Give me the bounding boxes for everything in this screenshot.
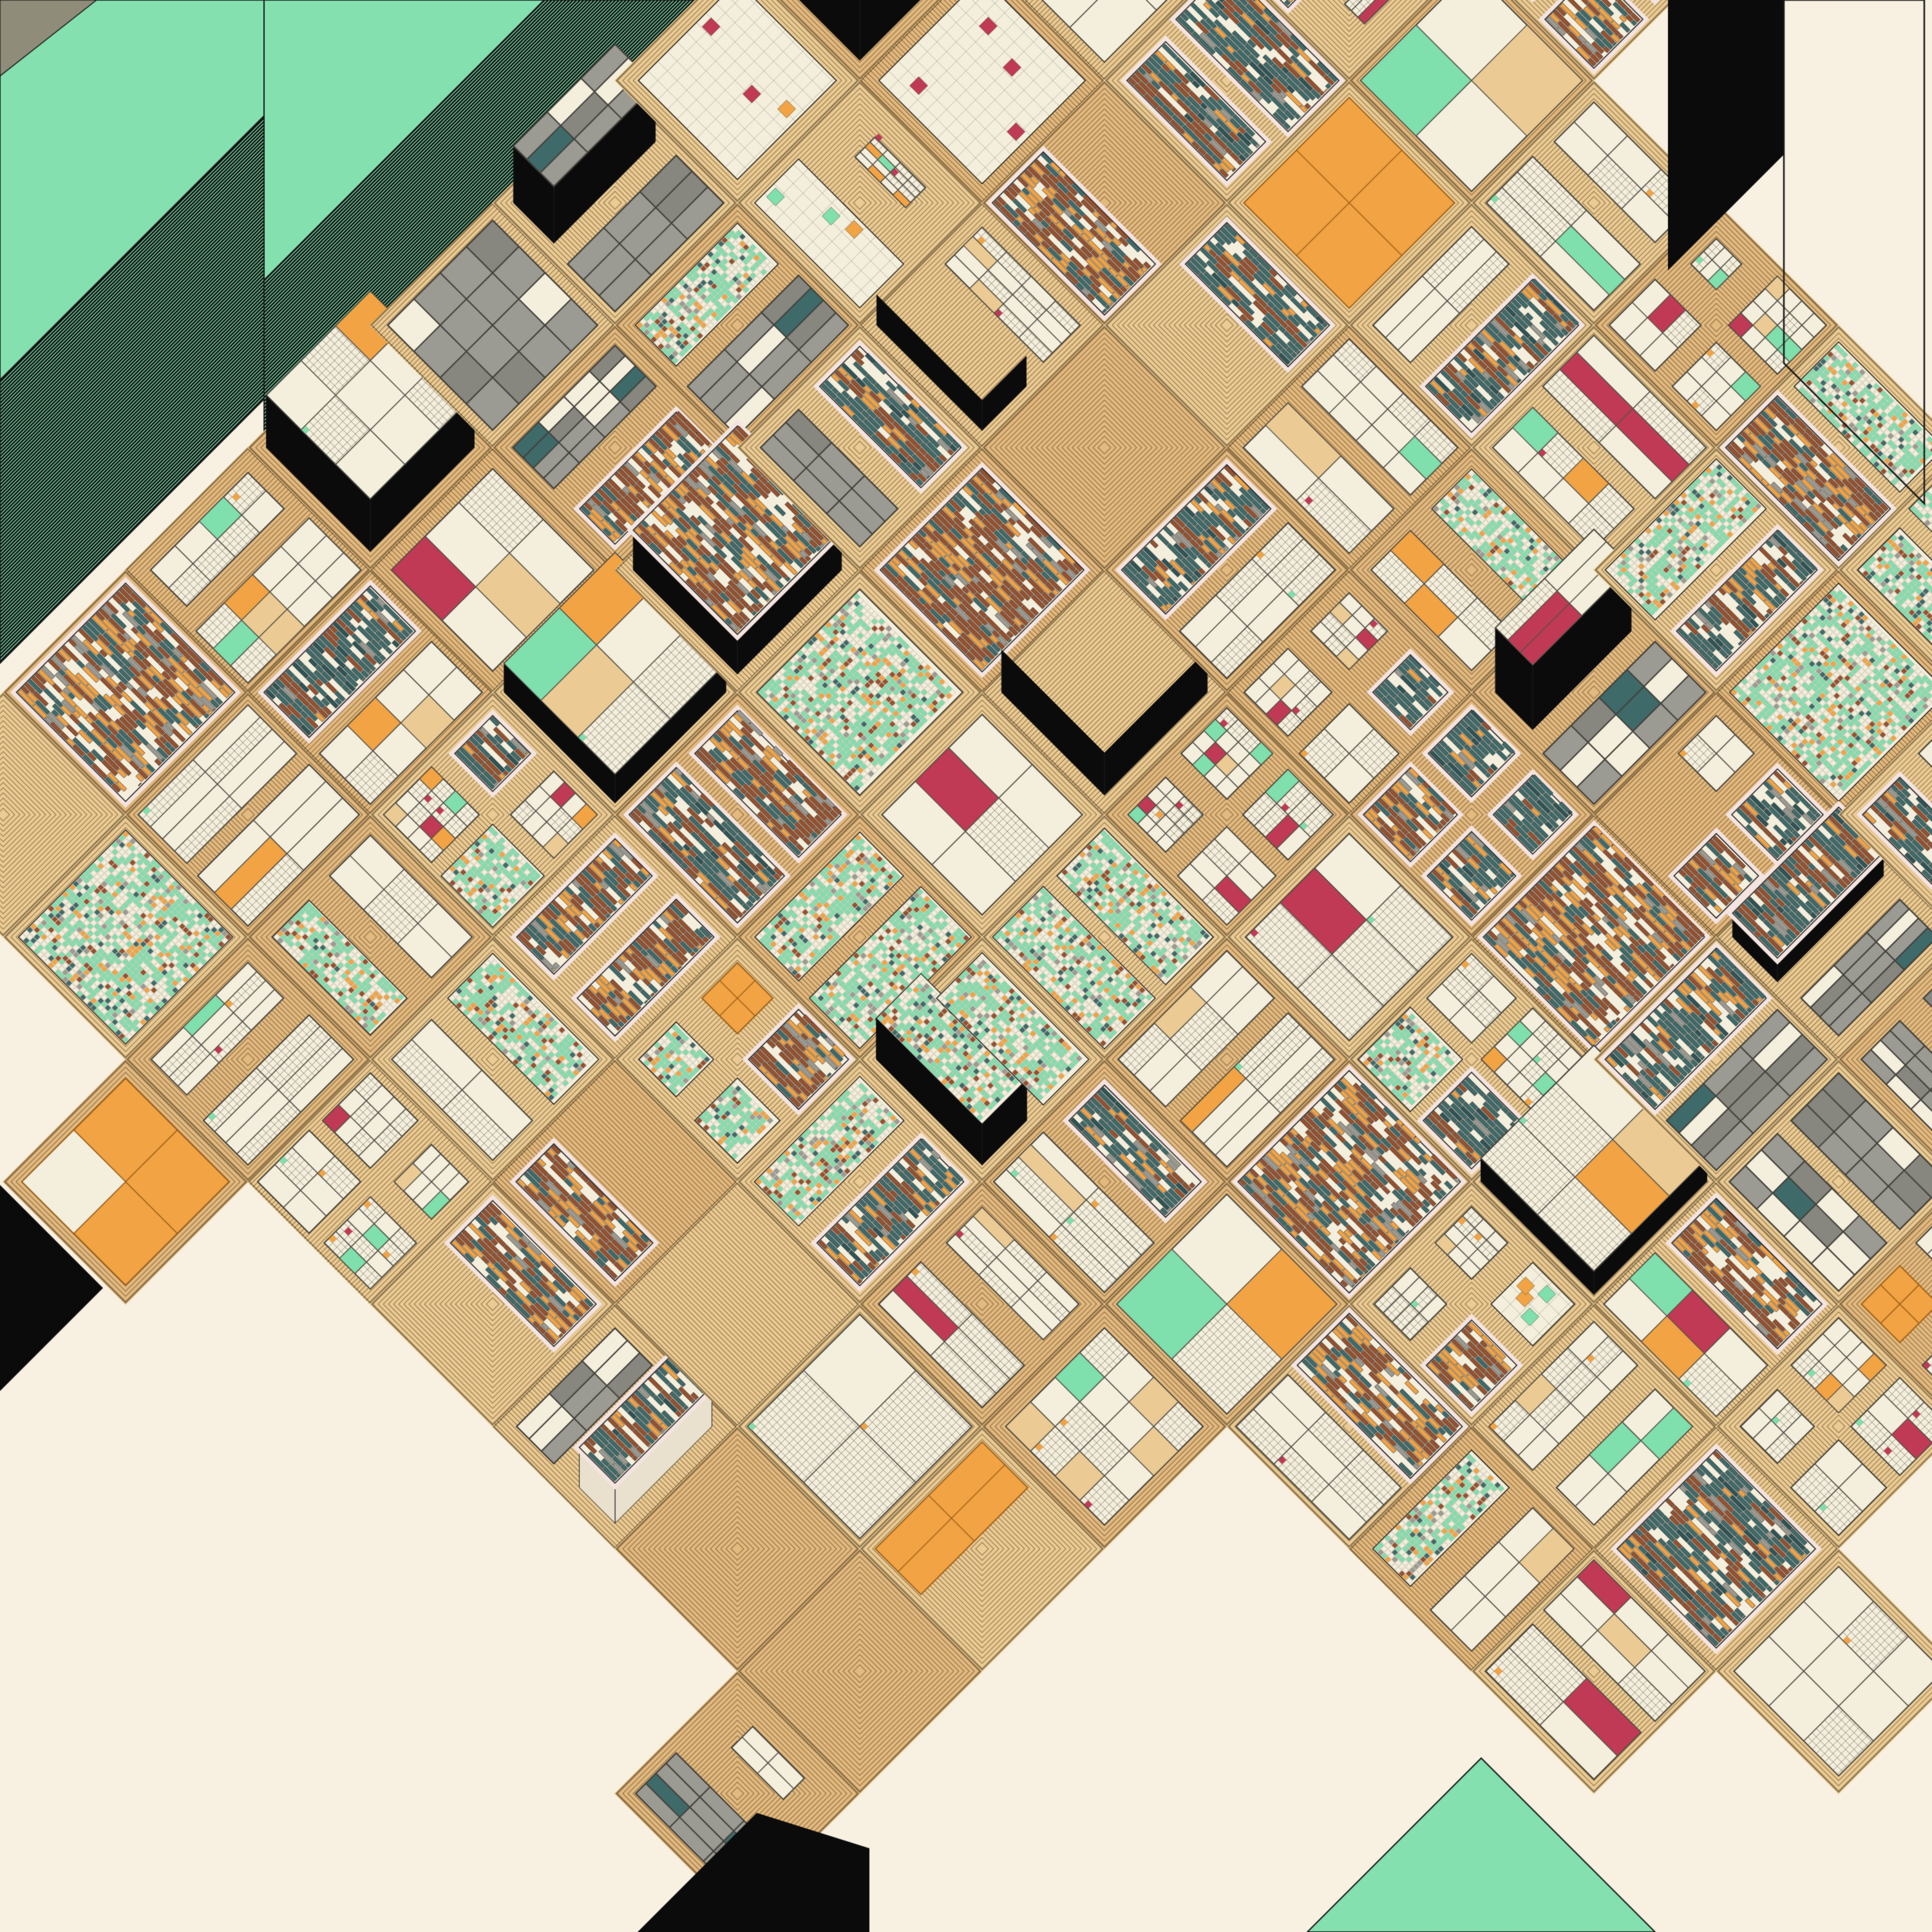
generative-artwork-canvas [0,0,1932,1932]
artwork-root [0,0,1932,1932]
